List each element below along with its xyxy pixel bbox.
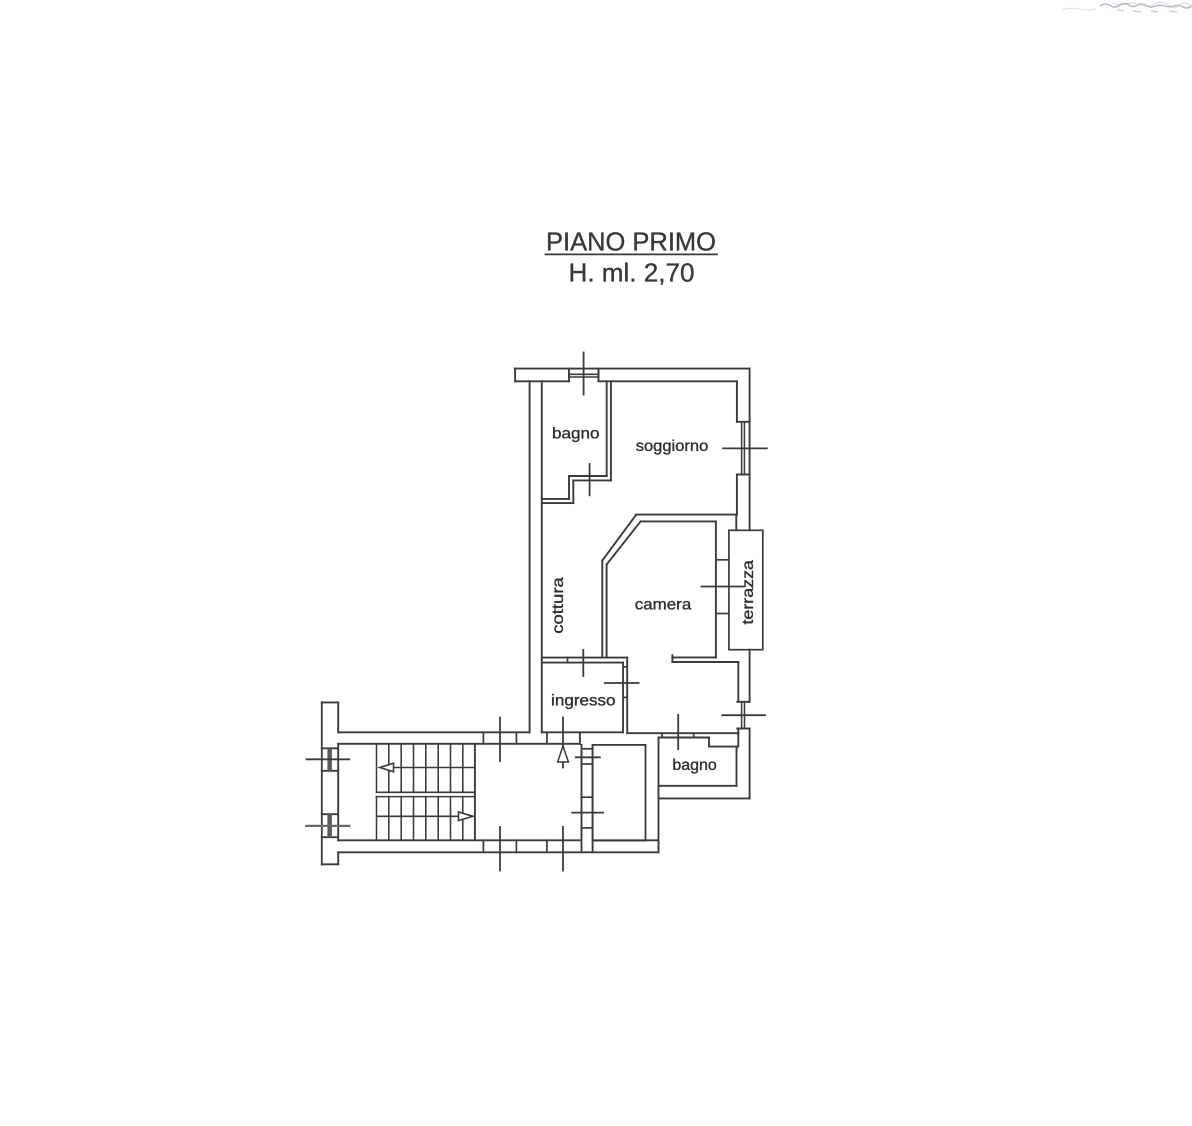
svg-text:bagno: bagno (672, 757, 717, 774)
svg-text:cottura: cottura (550, 577, 567, 634)
svg-text:terrazza: terrazza (740, 560, 757, 625)
svg-text:soggiorno: soggiorno (636, 438, 709, 455)
svg-text:H. ml. 2,70: H. ml. 2,70 (569, 258, 695, 288)
svg-text:bagno: bagno (552, 426, 600, 443)
svg-text:PIANO PRIMO: PIANO PRIMO (546, 227, 716, 257)
svg-text:ingresso: ingresso (551, 693, 616, 710)
svg-text:camera: camera (635, 597, 692, 614)
